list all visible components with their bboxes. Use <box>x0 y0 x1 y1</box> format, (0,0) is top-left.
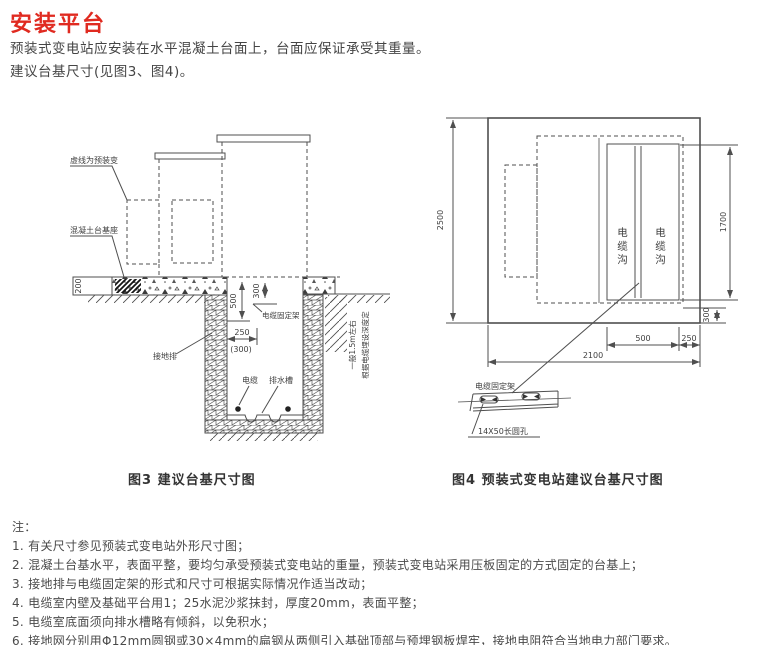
dim-200: 200 <box>74 278 83 293</box>
note-item-4: 4. 电缆室内壁及基础平台用1；25水泥沙浆抹封，厚度20mm，表面平整； <box>12 594 772 613</box>
dim-1700: 1700 <box>719 212 728 232</box>
dim-2100: 2100 <box>583 351 603 360</box>
dim-250: 250 <box>681 334 696 343</box>
ground-hatch-bottom <box>210 433 318 441</box>
brick-wall-left <box>205 295 227 420</box>
dim-500: 500 <box>635 334 650 343</box>
fig4-caption: 图4 预装式变电站建议台基尺寸图 <box>452 469 664 488</box>
note-item-6: 6. 接地网分别用Φ12mm圆钢或30×4mm的扁钢从两侧引入基础顶部与预埋钢板… <box>12 632 772 645</box>
embedded-steel-plate <box>115 279 141 293</box>
dim-250-alt: (300) <box>230 345 252 354</box>
label-depth-note-1: 一般1.5m左右 <box>347 320 357 370</box>
label-dashed-note: 虚线为预装变 <box>70 155 118 165</box>
dim-250: 250 <box>234 328 249 337</box>
note-item-3: 3. 接地排与电缆固定架的形式和尺寸可根据实际情况作适当改动； <box>12 575 772 594</box>
page-title: 安装平台 <box>10 6 106 38</box>
intro-line-2: 建议台基尺寸(见图3、图4)。 <box>10 61 430 84</box>
label-ground-bar: 接地排 <box>153 351 177 361</box>
ground-hatch-left <box>88 295 205 303</box>
trench-divider <box>635 146 641 298</box>
intro-line-1: 预装式变电站应安装在水平混凝土台面上，台面应保证承受其重量。 <box>10 38 430 61</box>
label-cable-bracket: 电缆固定架 <box>262 310 300 320</box>
cable-trench <box>205 277 347 441</box>
cable-dot-right <box>285 406 291 412</box>
protrusion-dashed <box>505 165 537 277</box>
brick-wall-right <box>303 295 323 420</box>
trench-area <box>607 144 679 300</box>
fig4-dimensions <box>446 118 738 367</box>
dim-300: 300 <box>702 307 711 322</box>
dim-2500: 2500 <box>436 210 445 230</box>
substation-footprint-dashed <box>537 136 683 303</box>
label-drain: 排水槽 <box>269 375 293 385</box>
fig3-caption: 图3 建议台基尺寸图 <box>128 469 256 488</box>
manual-page: 安装平台 预装式变电站应安装在水平混凝土台面上，台面应保证承受其重量。 建议台基… <box>0 0 775 645</box>
notes-heading: 注： <box>12 518 772 537</box>
plan-view <box>488 118 700 323</box>
label-depth-note-2: 根据电缆埋设深度定 <box>360 311 370 379</box>
label-trench-left: 电缆沟 <box>615 227 630 268</box>
note-item-5: 5. 电缆室底面须向排水槽略有倾斜，以免积水； <box>12 613 772 632</box>
cable-bracket-detail <box>458 283 639 437</box>
label-trench-right: 电缆沟 <box>653 227 668 268</box>
label-cable-bracket: 电缆固定架 <box>475 381 515 391</box>
note-item-1: 1. 有关尺寸参见预装式变电站外形尺寸图； <box>12 537 772 556</box>
brick-base <box>205 420 323 433</box>
fig4-drawing: 2500 1700 300 500 250 2100 电缆固定架 14X50长圆… <box>430 105 770 465</box>
label-oblong-hole: 14X50长圆孔 <box>478 426 528 436</box>
notes-section: 注： 1. 有关尺寸参见预装式变电站外形尺寸图； 2. 混凝土台基水平，表面平整… <box>12 518 772 645</box>
label-cable: 电缆 <box>242 375 258 385</box>
label-concrete-base: 混凝土台基座 <box>70 225 118 235</box>
substation-dashed-outline <box>127 135 340 277</box>
cable-dot-left <box>235 406 241 412</box>
dim-500: 500 <box>229 293 238 308</box>
earth-hatch-side <box>325 297 347 352</box>
fig3-drawing: 200 500 300 250 (300) 虚线为预装变 混凝土台基座 接地排 … <box>60 105 400 465</box>
intro-text: 预装式变电站应安装在水平混凝土台面上，台面应保证承受其重量。 建议台基尺寸(见图… <box>10 38 430 84</box>
dim-300: 300 <box>252 283 261 298</box>
note-item-2: 2. 混凝土台基水平，表面平整，要均匀承受预装式变电站的重量，预装式变电站采用压… <box>12 556 772 575</box>
